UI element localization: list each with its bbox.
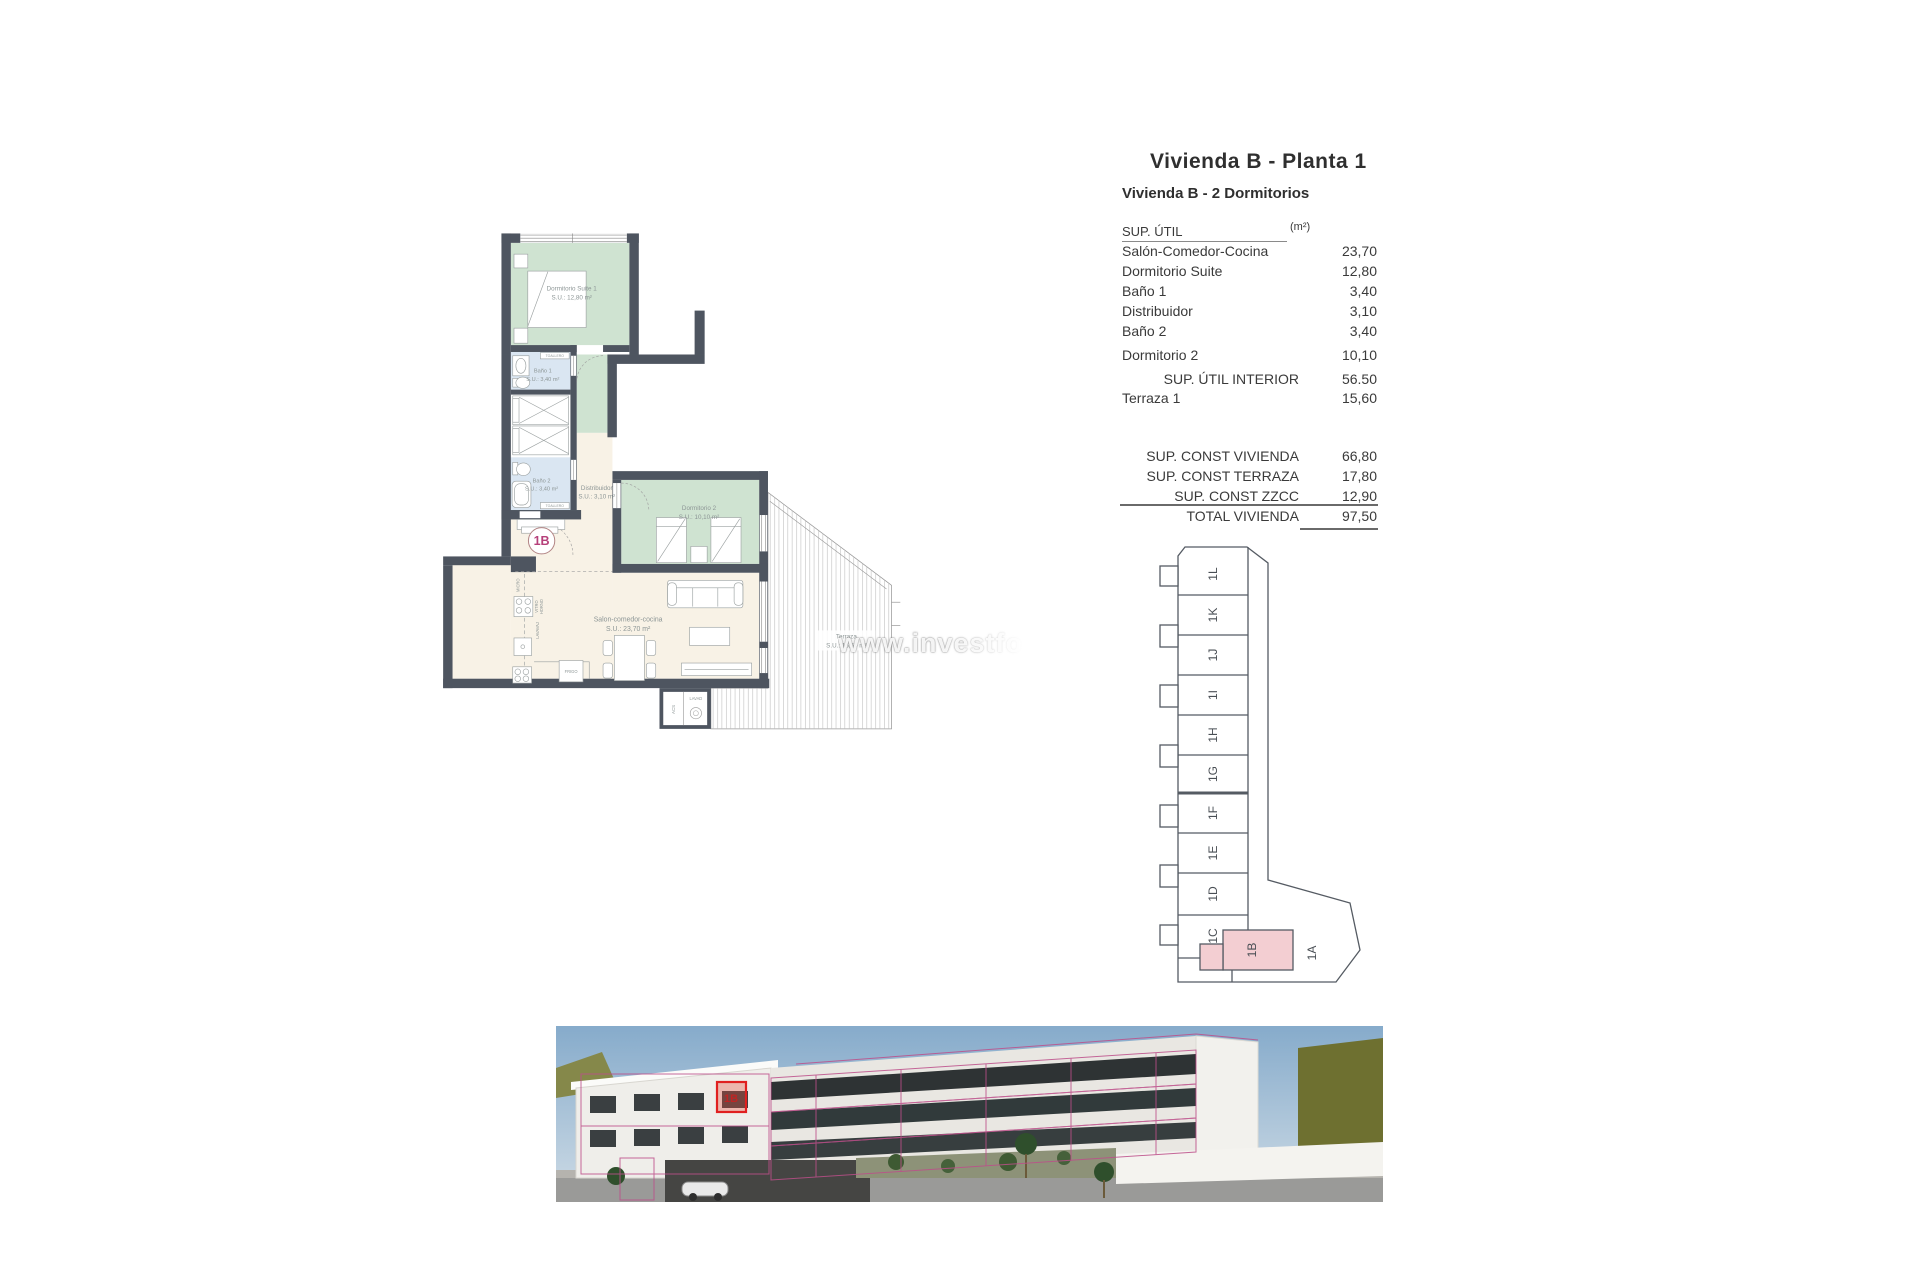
table-row: Dormitorio 2 10,10 [1122,347,1377,363]
row-label: Dormitorio Suite [1122,263,1313,279]
row-value: 66,80 [1313,448,1377,464]
end-block [1196,1036,1258,1166]
unit-badge-label: 1B [534,534,550,548]
keyplan-label-1g: 1G [1206,766,1220,782]
row-value: 15,60 [1313,390,1377,406]
table-subtotal-row: SUP. ÚTIL INTERIOR 56.50 [1122,371,1377,387]
row-value: 17,80 [1313,468,1377,484]
unit-marker-label: 1B [724,1093,738,1105]
table-row: Salón-Comedor-Cocina 23,70 [1122,243,1377,259]
row-label: Salón-Comedor-Cocina [1122,243,1313,259]
table-row: Baño 2 3,40 [1122,323,1377,339]
table-row: Terraza 1 15,60 [1122,390,1377,406]
plan-sheet: Terraza S.U.: 15,60 m² ACS LAVAD [0,0,1920,1280]
table-total-row: TOTAL VIVIENDA 97,50 [1122,508,1377,524]
floor-plan: Terraza S.U.: 15,60 m² ACS LAVAD [440,70,1180,940]
row-value: 12,80 [1313,263,1377,279]
keyplan-label-1l: 1L [1206,567,1220,581]
row-value: 12,90 [1313,488,1377,504]
row-value: 10,10 [1313,347,1377,363]
keyplan-label-1d: 1D [1206,886,1220,902]
keyplan-label-1j: 1J [1206,649,1220,662]
keyplan-label-1b: 1B [1245,943,1259,958]
micro-label: MICRO [516,578,521,592]
floor-fills [453,243,760,679]
keyplan-label-1i: 1I [1206,690,1220,700]
horno-label: HORNO [539,599,544,614]
row-label: Baño 2 [1122,323,1313,339]
bano1-area-label: S.U.: 3,40 m² [526,377,559,383]
keyplan-label-1f: 1F [1206,806,1220,820]
vitro-label: VITRO [534,600,539,612]
table-unit-header: (m²) [1290,221,1310,233]
distribuidor-area-label: S.U.: 3,10 m² [578,494,615,501]
bano1-label: Baño 1 [534,369,552,375]
toallero1-label: TOALLERO [546,354,565,358]
distribuidor-label: Distribuidor [581,485,613,492]
keyplan-label-1k: 1K [1206,608,1220,623]
lavad-label: LAVAD [690,696,703,701]
row-value: 56.50 [1313,371,1377,387]
unit-marker: 1B [717,1082,746,1112]
dorm2-area-label: S.U.: 10,10 m² [679,514,719,521]
row-label: SUP. CONST VIVIENDA [1122,448,1313,464]
table-const-row: SUP. CONST TERRAZA 17,80 [1122,468,1377,484]
row-label: TOTAL VIVIENDA [1122,508,1313,524]
total-underline [1300,528,1378,530]
suite-area-label: S.U.: 12,80 m² [551,294,591,301]
keyplan-label-1h: 1H [1206,727,1220,742]
row-label: Distribuidor [1122,303,1313,319]
table-header: SUP. ÚTIL [1122,224,1287,242]
acs-label: ACS [671,705,676,714]
page-title: Vivienda B - Planta 1 [1150,150,1367,174]
keyplan-label-1c: 1C [1206,928,1220,944]
building-render: 1B [556,1026,1383,1202]
table-const-row: SUP. CONST ZZCC 12,90 [1122,488,1377,504]
row-value: 3,10 [1313,303,1377,319]
row-value: 3,40 [1313,323,1377,339]
table-row: Distribuidor 3,10 [1122,303,1377,319]
row-label: Dormitorio 2 [1122,347,1313,363]
dorm2-label: Dormitorio 2 [682,505,717,512]
table-row: Dormitorio Suite 12,80 [1122,263,1377,279]
row-value: 3,40 [1313,283,1377,299]
table-divider [1120,504,1378,506]
watermark: www.investfo [838,628,1023,659]
keyplan-label-1a: 1A [1305,946,1319,961]
toallero2-label: TOALLERO [546,504,565,508]
keyplan-label-1e: 1E [1206,846,1220,861]
row-value: 23,70 [1313,243,1377,259]
salon-label: Salon-comedor-cocina [594,617,663,624]
suite-label: Dormitorio Suite 1 [547,286,598,293]
row-label: SUP. CONST TERRAZA [1122,468,1313,484]
utility-room: ACS LAVAD [659,688,710,729]
lavavaj-label: LAVAVAJ [535,622,540,639]
row-label: Terraza 1 [1122,390,1313,406]
page-subtitle: Vivienda B - 2 Dormitorios [1122,185,1309,202]
row-label: SUP. CONST ZZCC [1122,488,1313,504]
row-label: Baño 1 [1122,283,1313,299]
bano2-label: Baño 2 [533,478,551,484]
table-const-row: SUP. CONST VIVIENDA 66,80 [1122,448,1377,464]
frigo-label: FRIGO [565,669,578,674]
table-row: Baño 1 3,40 [1122,283,1377,299]
wardrobes [513,396,569,455]
row-value: 97,50 [1313,508,1377,524]
key-plan: 1L 1K 1J 1I 1H 1G 1F 1E 1D 1C 1B 1A [1140,540,1400,1015]
salon-area-label: S.U.: 23,70 m² [606,626,651,633]
bano2-area-label: S.U.: 3,40 m² [525,487,558,493]
row-label: SUP. ÚTIL INTERIOR [1122,371,1313,387]
